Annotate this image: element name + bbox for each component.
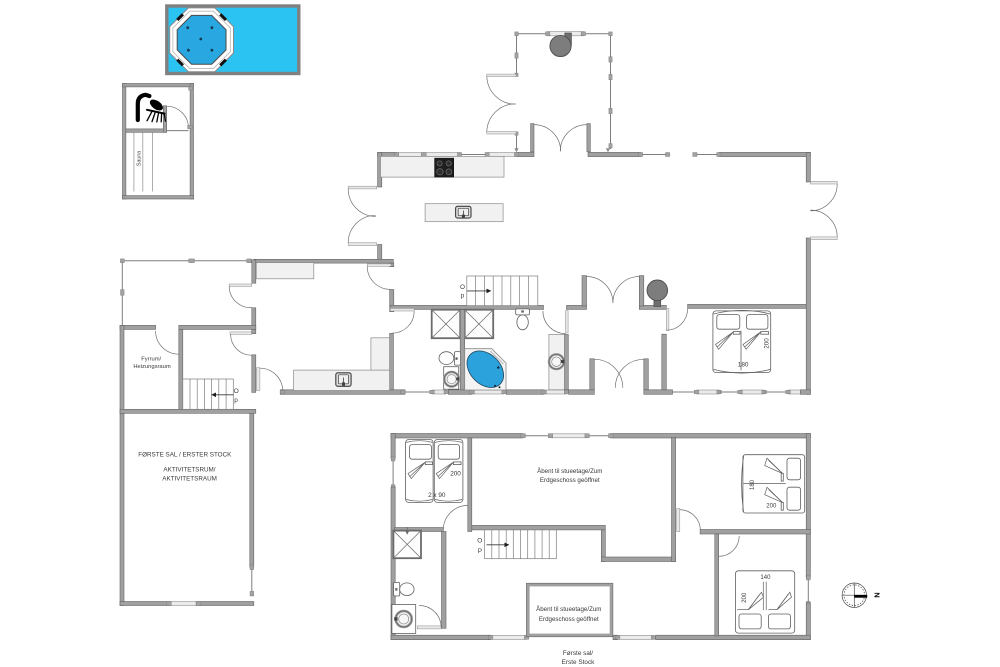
svg-text:O: O (477, 537, 482, 544)
svg-text:Åbent til stueetage/Zum: Åbent til stueetage/Zum (537, 468, 602, 475)
svg-text:FØRSTE SAL / ERSTER STOCK: FØRSTE SAL / ERSTER STOCK (138, 452, 232, 459)
svg-text:200: 200 (766, 504, 777, 510)
svg-text:Sauna: Sauna (137, 151, 143, 166)
svg-text:P: P (478, 548, 482, 555)
svg-text:Heizungsraum: Heizungsraum (133, 364, 171, 370)
svg-text:140: 140 (760, 575, 771, 581)
svg-text:180: 180 (738, 361, 749, 368)
svg-text:2 x 90: 2 x 90 (428, 492, 446, 499)
svg-text:AKTIVITETSRUM/: AKTIVITETSRUM/ (163, 467, 215, 474)
svg-text:Erdgeschoss geöffnet: Erdgeschoss geöffnet (539, 616, 599, 623)
svg-text:p: p (461, 292, 465, 299)
svg-text:Fyrrum/: Fyrrum/ (141, 356, 161, 362)
svg-text:N: N (873, 592, 882, 597)
svg-text:Erste Stock: Erste Stock (562, 659, 595, 666)
svg-text:O: O (234, 388, 239, 395)
svg-text:200: 200 (742, 592, 748, 603)
svg-text:O: O (460, 284, 465, 291)
svg-text:AKTIVITETSRAUM: AKTIVITETSRAUM (162, 476, 217, 483)
svg-text:Erdgeschoss geöffnet: Erdgeschoss geöffnet (540, 477, 600, 484)
svg-text:p: p (234, 397, 238, 404)
svg-text:Åbent til stueetage/Zum: Åbent til stueetage/Zum (536, 606, 601, 613)
svg-text:180: 180 (750, 479, 756, 490)
svg-text:200: 200 (763, 338, 770, 349)
svg-text:Første sal/: Første sal/ (563, 650, 593, 657)
svg-text:200: 200 (450, 470, 461, 477)
